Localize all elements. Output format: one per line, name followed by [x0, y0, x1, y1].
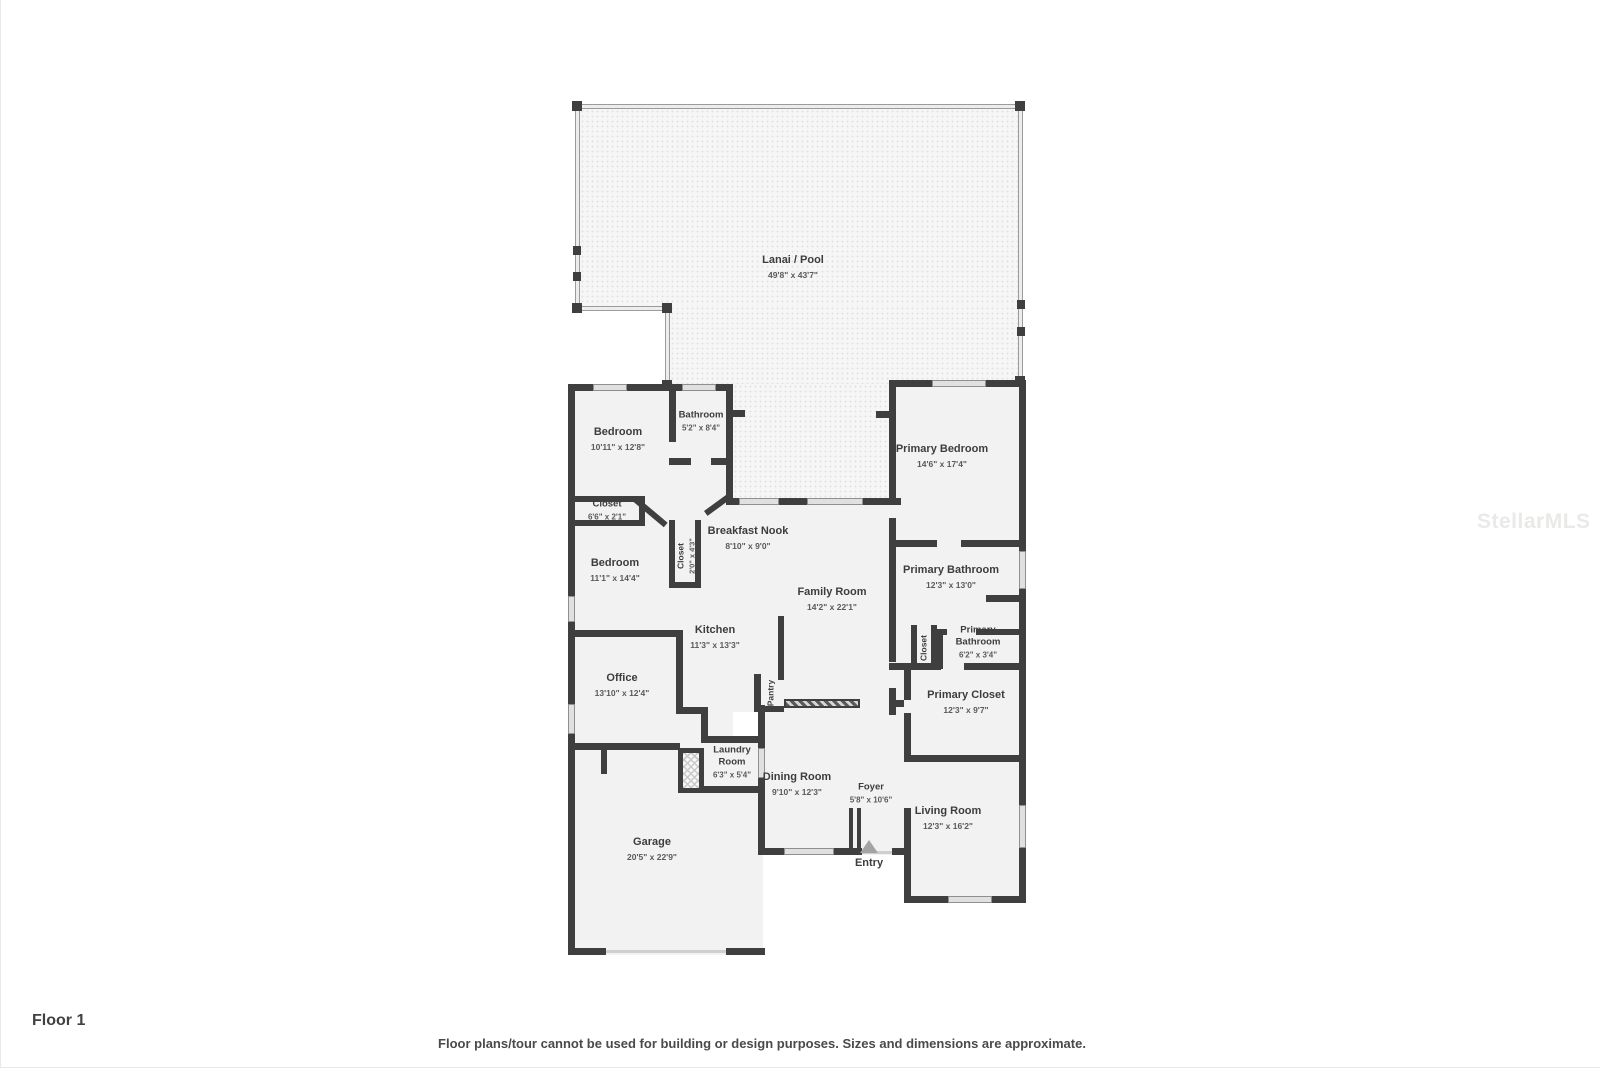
stellar-mls-watermark: StellarMLS — [1477, 510, 1591, 534]
wall — [669, 582, 701, 588]
screen-post — [572, 101, 582, 111]
wall — [701, 736, 763, 743]
room-label-kitchen: Kitchen 11'3" x 13'3" — [690, 624, 739, 650]
room-label-closet-2: Closet 2'0" x 4'3" — [676, 538, 697, 574]
wall — [729, 410, 745, 417]
room-label-primary-bedroom: Primary Bedroom 14'6" x 17'4" — [896, 443, 988, 469]
room-label-pantry: Pantry — [766, 680, 777, 706]
screen-post — [1017, 300, 1025, 309]
wall — [961, 540, 1026, 547]
room-label-living-room: Living Room 12'3" x 16'2" — [915, 805, 982, 831]
wall — [889, 547, 896, 662]
wall — [726, 384, 733, 505]
wall — [876, 411, 890, 418]
wall — [754, 706, 784, 712]
wall — [669, 520, 675, 588]
room-label-dining-room: Dining Room 9'10" x 12'3" — [763, 771, 831, 797]
window — [682, 384, 716, 391]
lanai-area — [575, 104, 1023, 311]
window — [568, 704, 575, 734]
window — [807, 498, 863, 505]
wall — [669, 384, 676, 442]
wall — [676, 630, 683, 714]
floor-plan: Lanai / Pool 49'8" x 43'7" Bedroom 10'11… — [1, 0, 1600, 1067]
kitchen-counter — [784, 699, 860, 708]
disclaimer-text: Floor plans/tour cannot be used for buil… — [438, 1036, 1086, 1051]
garage-door-line — [606, 950, 726, 953]
screen-post — [1015, 101, 1025, 111]
screen-post — [1017, 327, 1025, 336]
wall — [568, 948, 606, 955]
room-label-bedroom-2: Bedroom 11'1" x 14'4" — [590, 557, 639, 583]
room-label-primary-bathroom: Primary Bathroom 12'3" x 13'0" — [903, 564, 999, 590]
screen-post — [573, 246, 581, 255]
screen-post — [572, 303, 582, 313]
room-label-lanai-pool: Lanai / Pool 49'8" x 43'7" — [762, 254, 824, 280]
room-label-breakfast-nook: Breakfast Nook 8'10" x 9'0" — [708, 525, 789, 551]
room-label-office: Office 13'10" x 12'4" — [595, 672, 650, 698]
wall — [568, 630, 683, 637]
lanai-area — [665, 306, 1023, 388]
room-label-bathroom: Bathroom 5'2" x 8'4" — [679, 410, 724, 433]
screen-wall — [1018, 104, 1023, 384]
wall — [669, 458, 691, 465]
wall — [889, 663, 941, 670]
screen-post — [573, 272, 581, 281]
room-label-laundry-room: Laundry Room 6'3" x 5'4" — [705, 745, 760, 780]
room-label-family-room: Family Room 14'2" x 22'1" — [797, 586, 866, 612]
room-label-primary-closet: Primary Closet 12'3" x 9'7" — [927, 689, 1005, 715]
wall — [568, 743, 575, 955]
wall — [778, 616, 784, 680]
room-label-bedroom-1: Bedroom 10'11" x 12'8" — [591, 426, 645, 452]
room-label-primary-bathroom-2: Primary Bathroom 6'2" x 3'4" — [943, 625, 1013, 660]
window — [784, 848, 834, 855]
wall — [601, 750, 607, 774]
wall — [568, 743, 680, 750]
entry-label: Entry — [855, 857, 883, 869]
wall — [904, 755, 1026, 762]
window — [1019, 805, 1026, 848]
screen-wall — [665, 306, 670, 388]
wall — [986, 595, 1026, 602]
window — [932, 380, 986, 387]
room-label-closet-3: Closet — [919, 635, 930, 661]
wall — [726, 948, 765, 955]
lanai-area — [733, 384, 889, 504]
wall — [568, 384, 575, 752]
screen-post — [662, 303, 672, 313]
window — [1019, 551, 1026, 589]
entry-arrow-icon — [860, 840, 878, 853]
wall — [964, 663, 1026, 670]
window — [948, 896, 992, 903]
wall — [889, 540, 937, 547]
window — [568, 596, 575, 622]
utility-hatch — [678, 748, 704, 793]
screen-wall — [575, 306, 670, 311]
wall — [904, 663, 911, 700]
wall — [892, 700, 904, 707]
room-label-closet-1: Closet 6'6" x 2'1" — [588, 499, 626, 522]
room-label-foyer: Foyer 5'8" x 10'6" — [850, 782, 893, 805]
floor-title: Floor 1 — [32, 1012, 85, 1030]
wall — [889, 384, 896, 498]
wall — [904, 808, 911, 903]
wall — [849, 808, 853, 855]
wall — [701, 786, 763, 793]
room-label-garage: Garage 20'5" x 22'9" — [627, 836, 677, 862]
window — [593, 384, 627, 391]
window — [739, 498, 779, 505]
screen-wall — [575, 104, 1023, 109]
